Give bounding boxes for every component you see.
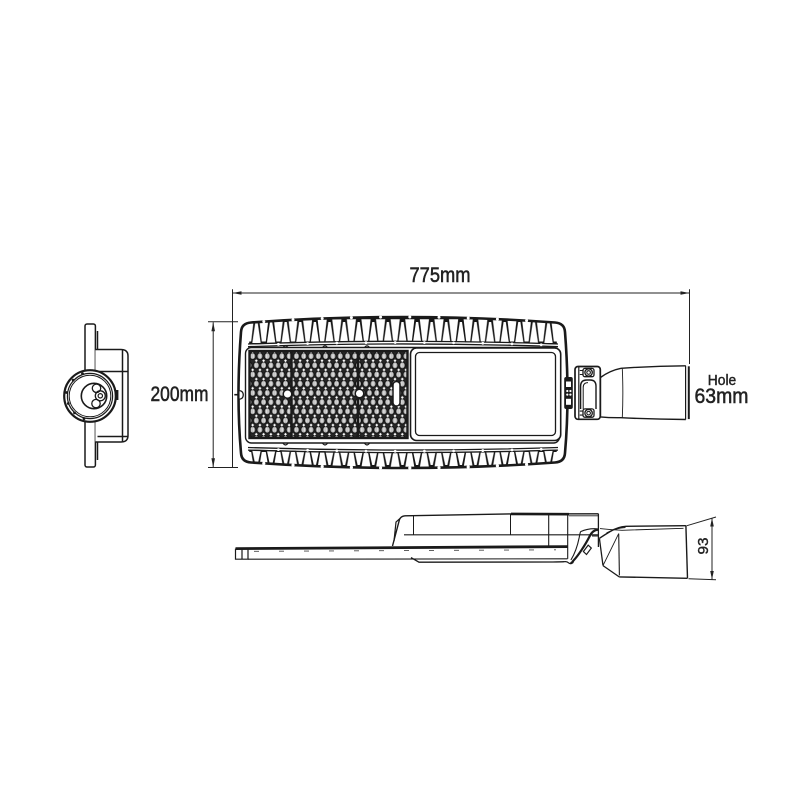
svg-text:200mm: 200mm [151,382,209,406]
svg-text:63mm: 63mm [695,385,749,408]
svg-text:775mm: 775mm [410,263,471,287]
svg-text:93: 93 [695,538,712,555]
